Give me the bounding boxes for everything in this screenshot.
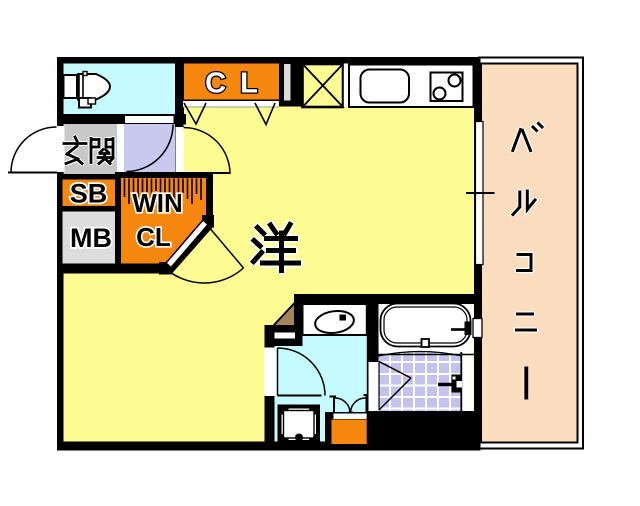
svg-text:SB: SB xyxy=(70,179,108,209)
svg-text:CL: CL xyxy=(136,222,171,252)
svg-text:C L: C L xyxy=(205,68,261,100)
svg-text:WIN: WIN xyxy=(132,188,183,218)
svg-text:MB: MB xyxy=(70,223,112,253)
